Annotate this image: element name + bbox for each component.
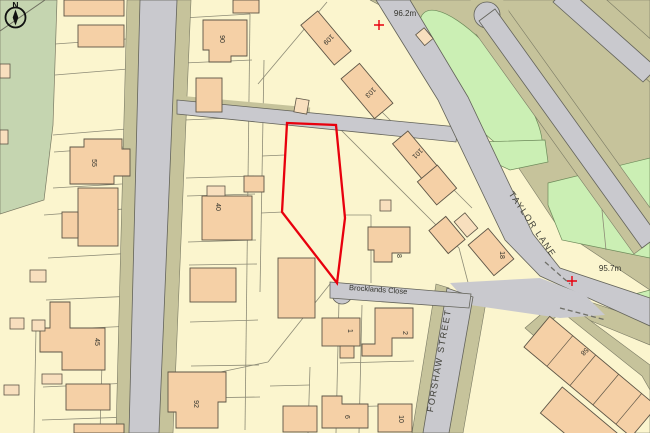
spot-height-north: 96.2m (394, 9, 417, 18)
house-number-6: 6 (343, 415, 350, 419)
house-number-1: 1 (346, 329, 353, 333)
house-number-55: 55 (90, 159, 97, 167)
house-number-45: 45 (93, 338, 100, 346)
house-number-8: 8 (395, 254, 402, 258)
house-number-2: 2 (401, 331, 408, 335)
compass-north-label: N (12, 0, 18, 10)
house-number-18: 18 (498, 251, 505, 259)
house-number-92: 92 (192, 400, 199, 408)
house-number-10: 10 (397, 415, 404, 423)
house-number-90: 90 (218, 35, 225, 43)
map-canvas[interactable]: N 96.2m 95.7m TAYLOR LANE Brocklands Clo… (0, 0, 650, 433)
house-number-40: 40 (214, 203, 221, 211)
spot-height-east: 95.7m (599, 264, 622, 273)
